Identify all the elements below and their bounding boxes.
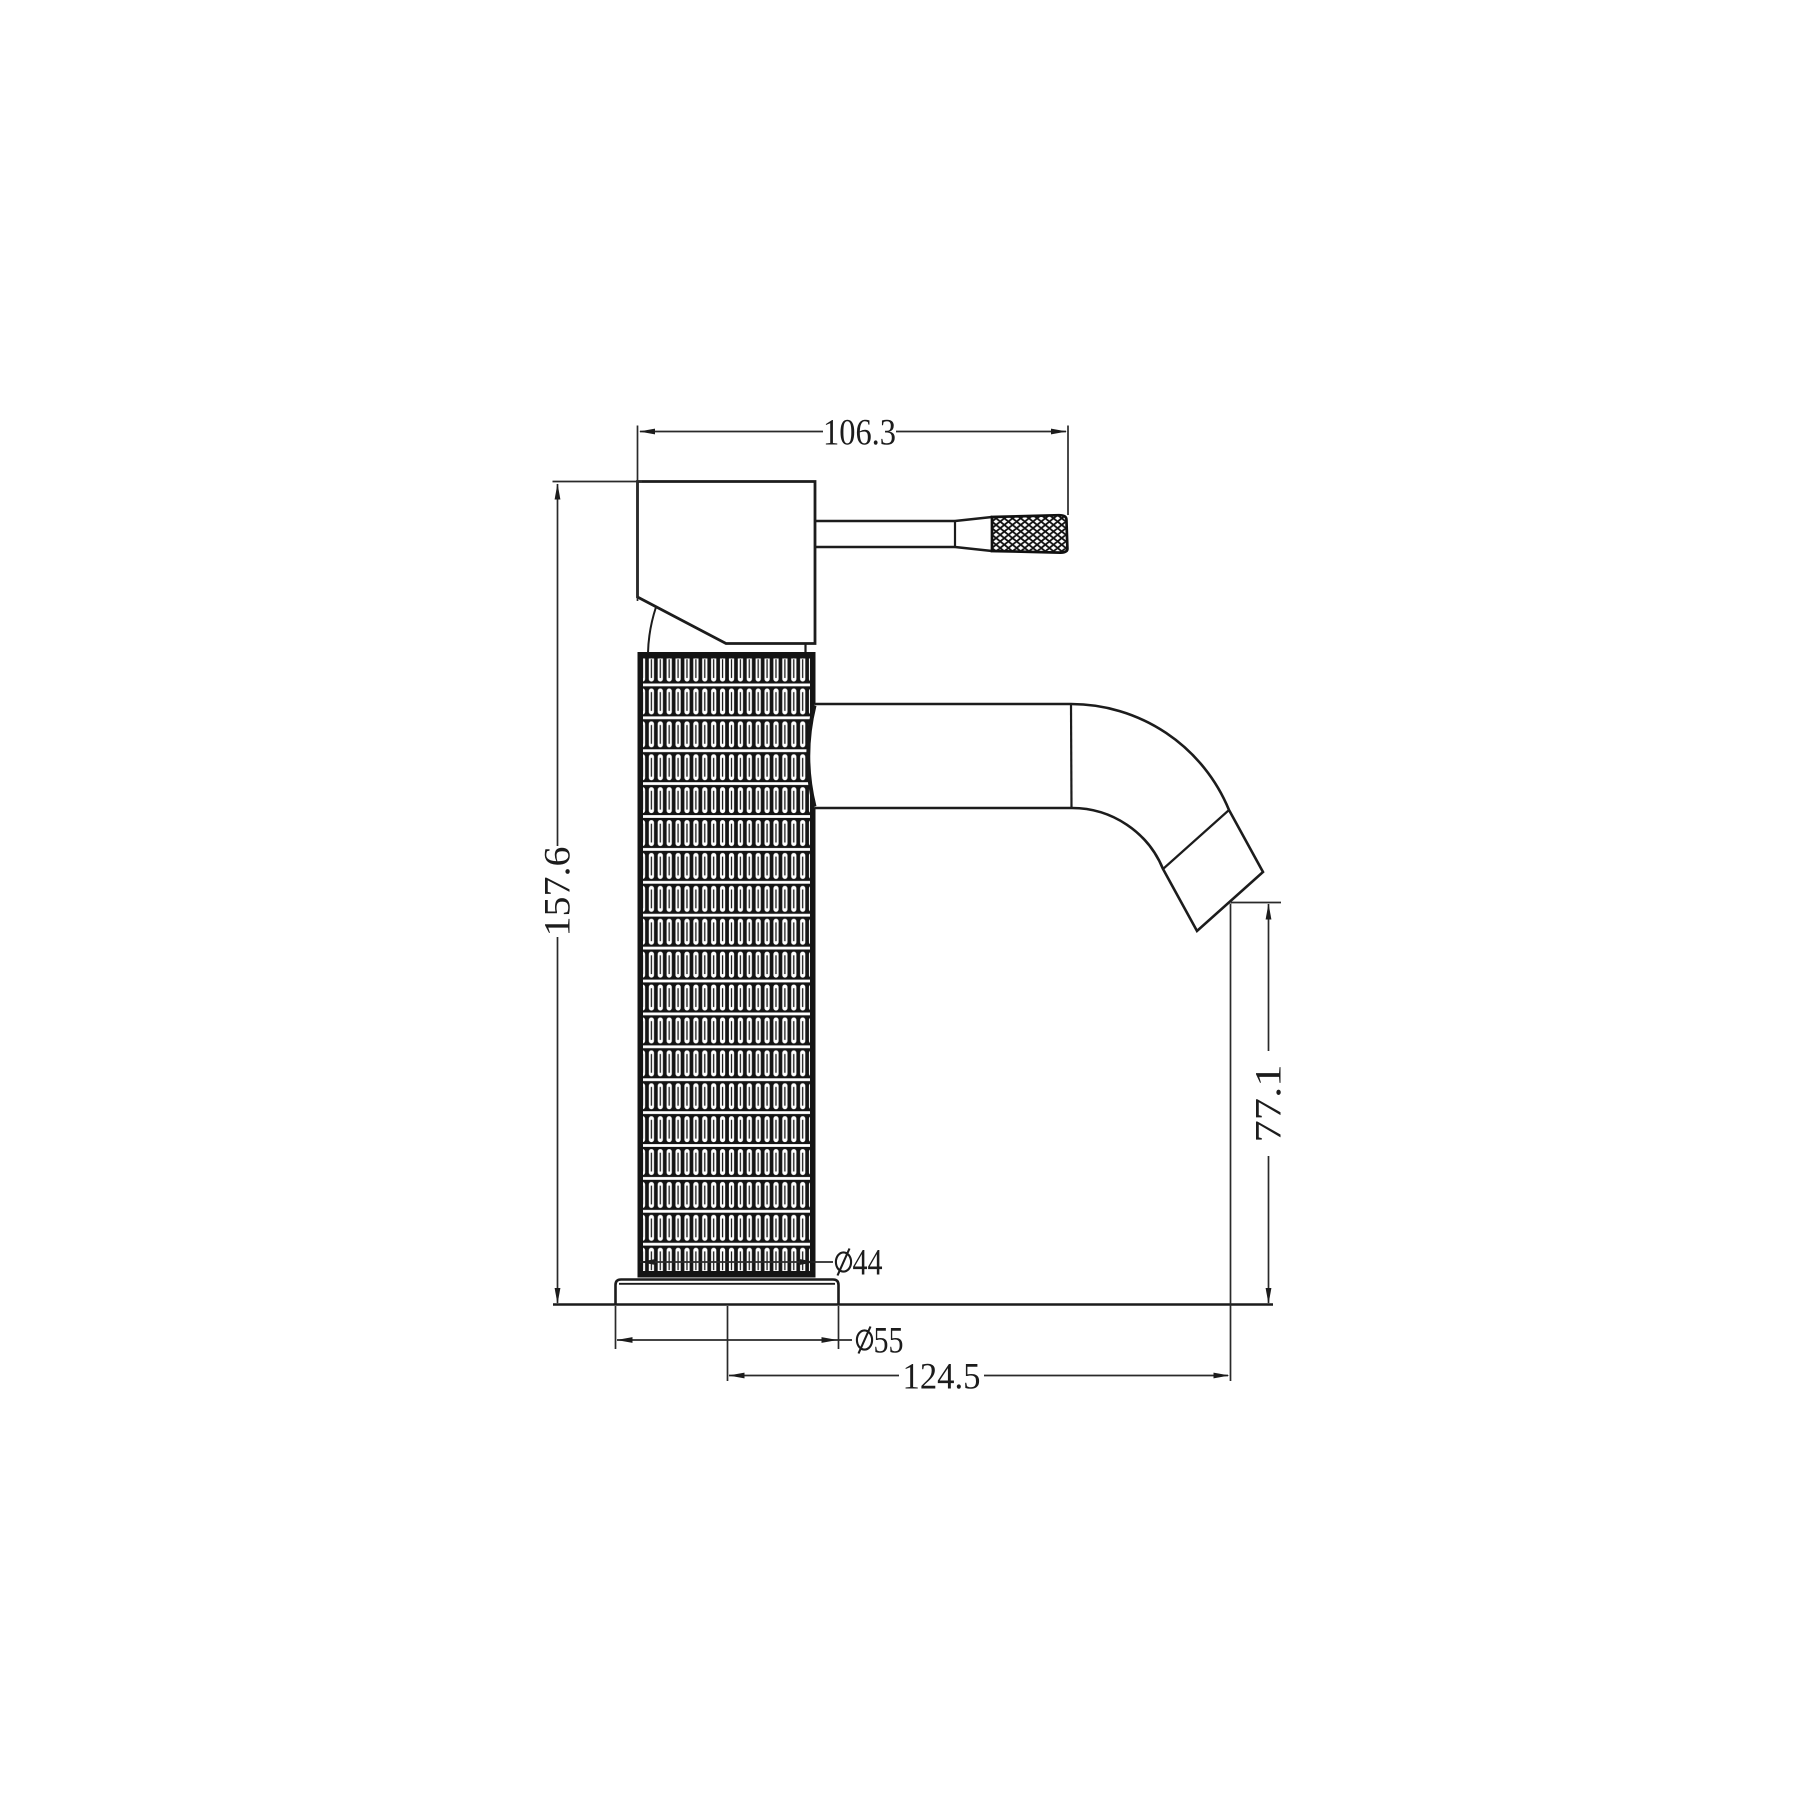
- svg-text:106.3: 106.3: [823, 413, 896, 454]
- svg-text:157.6: 157.6: [538, 847, 579, 937]
- svg-text:44: 44: [853, 1243, 883, 1284]
- svg-text:55: 55: [874, 1321, 904, 1362]
- svg-text:124.5: 124.5: [903, 1357, 981, 1398]
- svg-text:77.1: 77.1: [1249, 1065, 1290, 1143]
